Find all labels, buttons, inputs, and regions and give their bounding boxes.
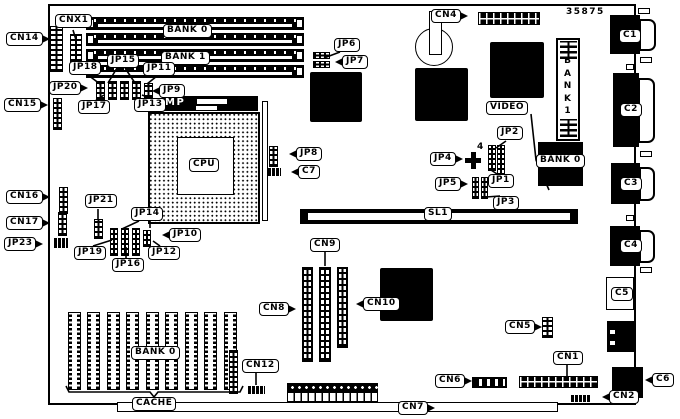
label-c3: C3 [620,177,642,191]
connector-cn10 [337,267,348,348]
label-jp12: JP12 [148,246,180,260]
label-c4: C4 [620,239,642,253]
label-jp20: JP20 [49,81,81,95]
label-jp9: JP9 [159,84,185,98]
label-jp21: JP21 [85,194,117,208]
label-c7: C7 [298,165,320,179]
label-c2: C2 [620,103,642,117]
label-jp6: JP6 [334,38,360,52]
jumper-jp5-b [481,177,488,199]
label-cn14: CN14 [6,32,43,46]
jumper-block [108,81,117,100]
label-cn16: CN16 [6,190,43,204]
edge-tab [640,267,652,273]
part-number: 35875 [566,7,605,17]
jumper-jp21 [94,219,103,239]
label-jp18: JP18 [69,61,101,75]
label-jp11: JP11 [143,62,175,76]
jumper-jp5-a [472,177,479,199]
label-jp19: JP19 [74,246,106,260]
label-cn4: CN4 [431,9,461,23]
connector-cn9 [319,267,331,362]
label-jp8: JP8 [296,147,322,161]
jumper-jp2-a [488,145,496,171]
slot-cn7 [117,402,558,412]
jumper-jp7 [313,61,330,68]
label-bank0-top: BANK 0 [163,24,212,38]
label-bank0-cache: BANK 0 [131,346,180,360]
jumper-block [96,81,105,100]
mp-module-window [197,99,227,104]
label-jp15: JP15 [107,54,139,68]
jumper-jp4 [465,152,481,169]
label-c5: C5 [611,287,633,301]
chip-video [490,42,544,98]
label-pin4-marker: 4 [477,142,483,152]
connector-c1-dsub [639,19,656,51]
jumper-block [120,81,129,100]
edge-tab [640,151,652,157]
mp-module-window [196,106,217,110]
dip-socket [185,312,198,390]
edge-tab [638,8,650,14]
connector-audio-nub [609,340,616,346]
label-cn12: CN12 [242,359,279,373]
motherboard-layout-diagram: MP BANK1 [0,0,680,419]
label-jp17: JP17 [78,100,110,114]
label-cn1: CN1 [553,351,583,365]
slot-bank1-cells-bottom [560,119,577,137]
chip-qfp-c [380,268,433,321]
connector-jp23 [54,238,68,248]
dip-socket [87,312,100,390]
jumper-block [121,228,129,256]
connector-audio [607,321,635,352]
edge-tab [640,57,652,63]
chip-qfp-a [310,72,362,122]
label-jp16: JP16 [112,258,144,272]
label-jp14: JP14 [131,207,163,221]
jumper-jp2-b [497,145,505,176]
edge-tab [626,64,634,70]
label-jp2: JP2 [497,126,523,140]
jumper-jp8 [269,146,278,167]
mp-module-label: MP [165,97,185,108]
dip-socket [107,312,120,390]
connector-cn8 [302,267,313,362]
label-cn5: CN5 [505,320,535,334]
connector-cn15 [53,98,62,130]
label-cache: CACHE [132,397,176,411]
jumper-block [110,228,118,256]
label-cn2: CN2 [609,390,639,404]
label-video: VIDEO [486,101,528,115]
jumper-block [143,230,151,247]
label-cn7: CN7 [398,401,428,415]
label-cn9: CN9 [310,238,340,252]
label-jp7: JP7 [342,55,368,69]
dip-socket [68,312,81,390]
edge-tab [626,215,634,221]
label-cnx1: CNX1 [55,14,92,28]
label-jp13: JP13 [134,98,166,112]
jumper-block [132,228,140,256]
chip-qfp-b [415,68,468,121]
connector-cn12-strip [229,350,238,394]
dip-socket [204,312,217,390]
label-jp23: JP23 [4,237,36,251]
label-jp1: JP1 [488,174,514,188]
label-bank0-video: BANK 0 [536,154,585,168]
label-cpu: CPU [189,158,219,172]
connector-cnx1-b [70,34,82,62]
label-cn17: CN17 [6,216,43,230]
label-jp5: JP5 [435,177,461,191]
connector-cnx1-a [50,26,63,72]
connector-cn4-header [478,12,540,25]
connector-cn1-header [519,376,598,388]
jumper-cn5 [542,317,553,338]
connector-cn6 [472,377,507,388]
slot-bank1-label: BANK1 [562,55,573,118]
label-cn10: CN10 [363,297,400,311]
label-jp4: JP4 [430,152,456,166]
label-c1: C1 [619,29,641,43]
connector-cn2 [571,395,590,402]
label-c6: C6 [652,373,674,387]
jumper-jp6 [313,52,330,59]
connector-audio-nub [609,329,616,335]
terminal-header-pins [287,383,378,392]
terminal-header-sockets [287,392,378,402]
label-cn15: CN15 [4,98,41,112]
cpu-retention-bar [262,101,268,221]
label-sl1: SL1 [424,207,452,221]
label-jp3: JP3 [493,196,519,210]
connector-cn17 [58,212,67,236]
label-cn6: CN6 [435,374,465,388]
component-c7 [268,168,281,176]
component-cn12 [248,386,265,394]
label-jp10: JP10 [169,228,201,242]
label-cn8: CN8 [259,302,289,316]
connector-cn16 [59,187,68,214]
